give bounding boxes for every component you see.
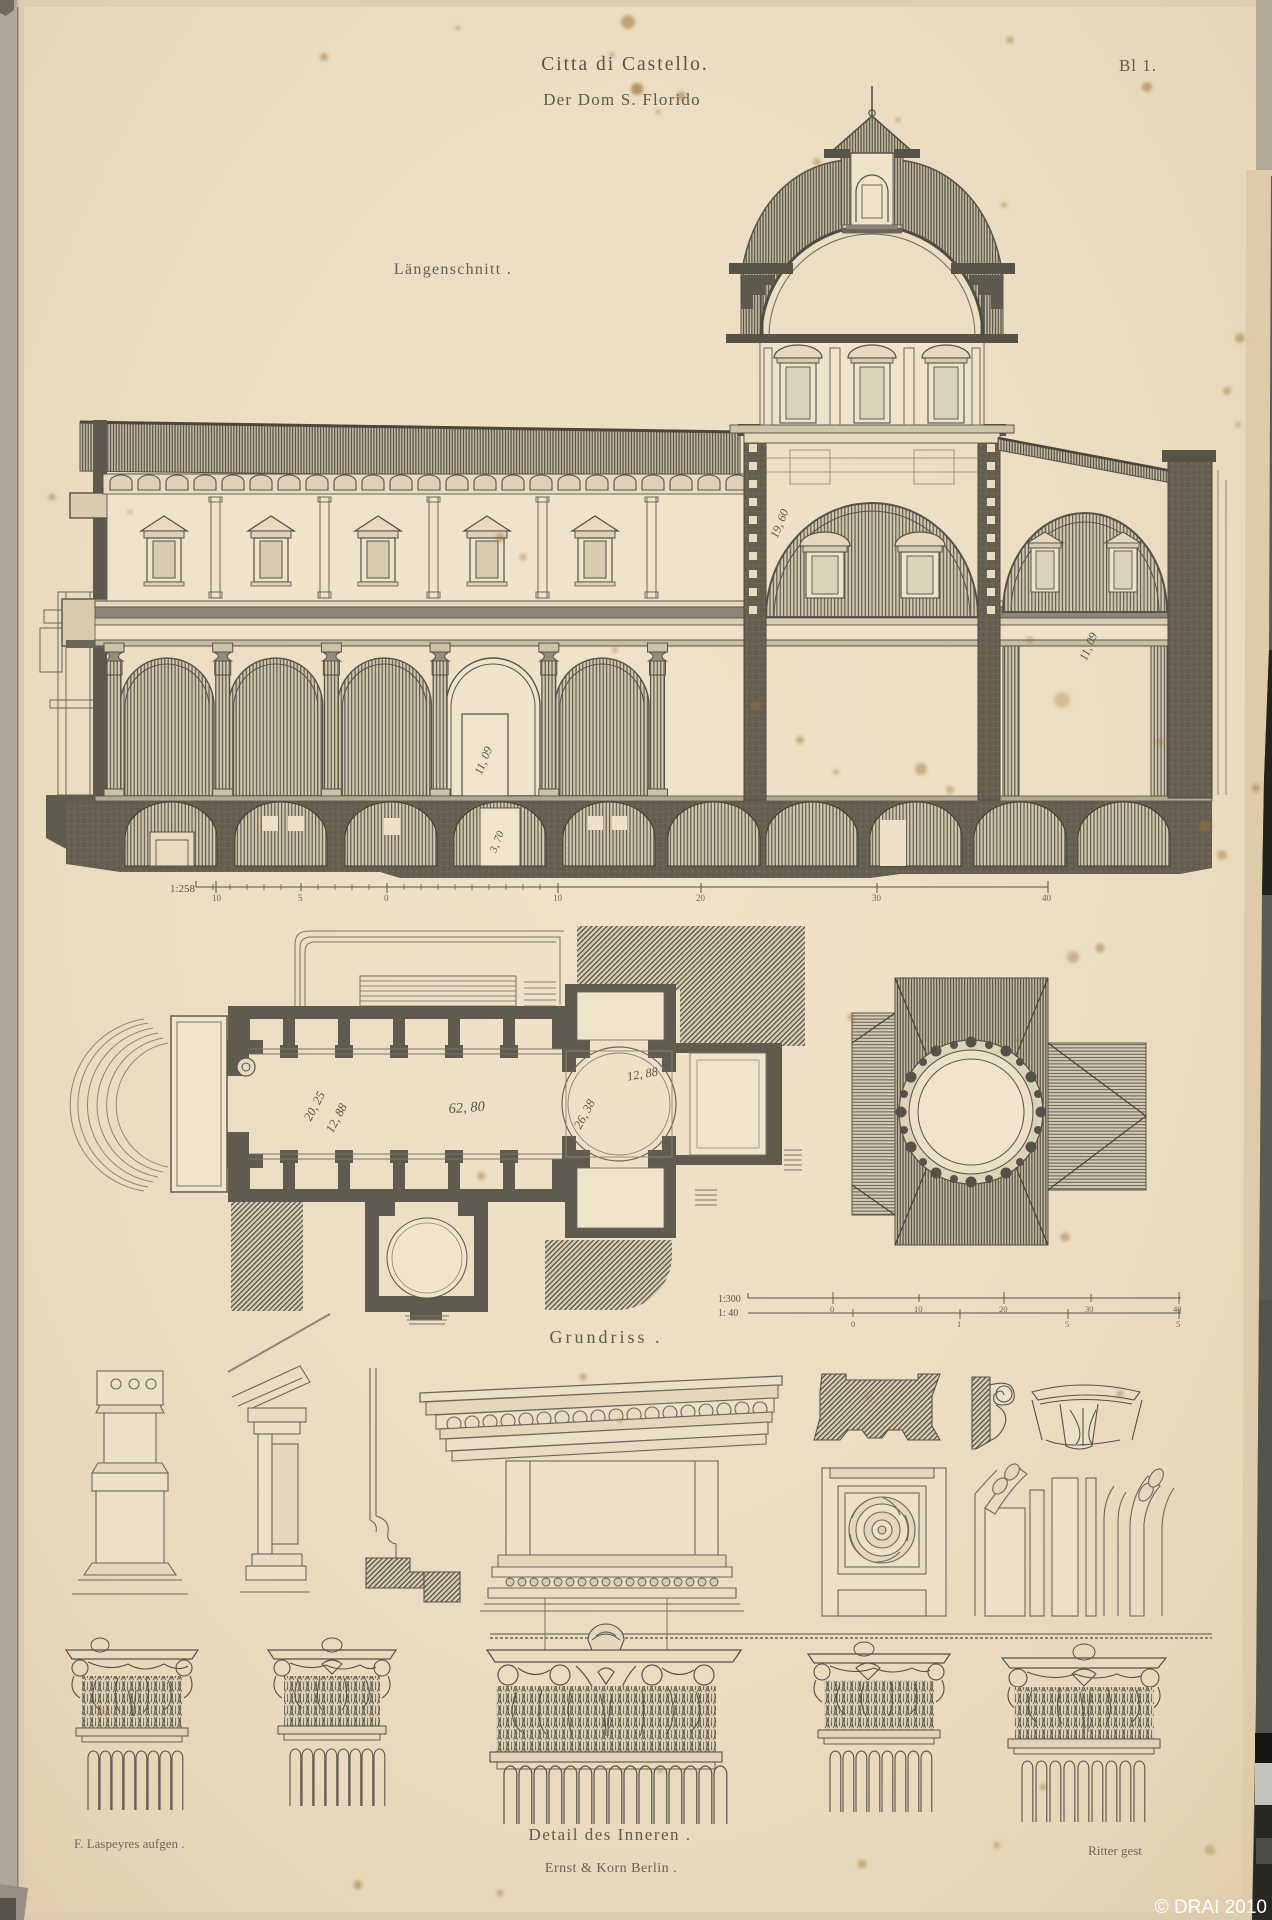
svg-text:1: 1 [957, 1319, 961, 1329]
svg-text:Der Dom S. Florido: Der Dom S. Florido [543, 90, 701, 109]
svg-text:Ernst & Korn Berlin .: Ernst & Korn Berlin . [545, 1861, 677, 1876]
svg-text:30: 30 [872, 893, 882, 903]
svg-text:5: 5 [298, 893, 303, 903]
svg-text:5: 5 [1065, 1319, 1069, 1329]
svg-text:20: 20 [696, 893, 706, 903]
svg-text:Grundriss .: Grundriss . [550, 1327, 663, 1347]
svg-text:Längenschnitt .: Längenschnitt . [394, 261, 512, 278]
svg-text:Citta di Castello.: Citta di Castello. [541, 54, 709, 75]
svg-text:40: 40 [1042, 893, 1052, 903]
svg-text:1: 40: 1: 40 [718, 1308, 738, 1319]
svg-text:Detail des Inneren .: Detail des Inneren . [528, 1825, 691, 1844]
svg-text:0: 0 [384, 893, 389, 903]
svg-text:1:300: 1:300 [718, 1294, 741, 1305]
svg-text:10: 10 [212, 893, 222, 903]
svg-text:0: 0 [851, 1319, 855, 1329]
svg-text:1:258: 1:258 [170, 883, 196, 895]
svg-text:5: 5 [1176, 1319, 1180, 1329]
svg-text:Ritter gest: Ritter gest [1088, 1843, 1142, 1858]
svg-text:Bl 1.: Bl 1. [1119, 56, 1157, 75]
svg-text:© DRAI 2010: © DRAI 2010 [1155, 1897, 1267, 1918]
svg-text:10: 10 [553, 893, 563, 903]
svg-text:62, 80: 62, 80 [448, 1099, 486, 1118]
svg-text:F. Laspeyres aufgen .: F. Laspeyres aufgen . [74, 1836, 185, 1851]
